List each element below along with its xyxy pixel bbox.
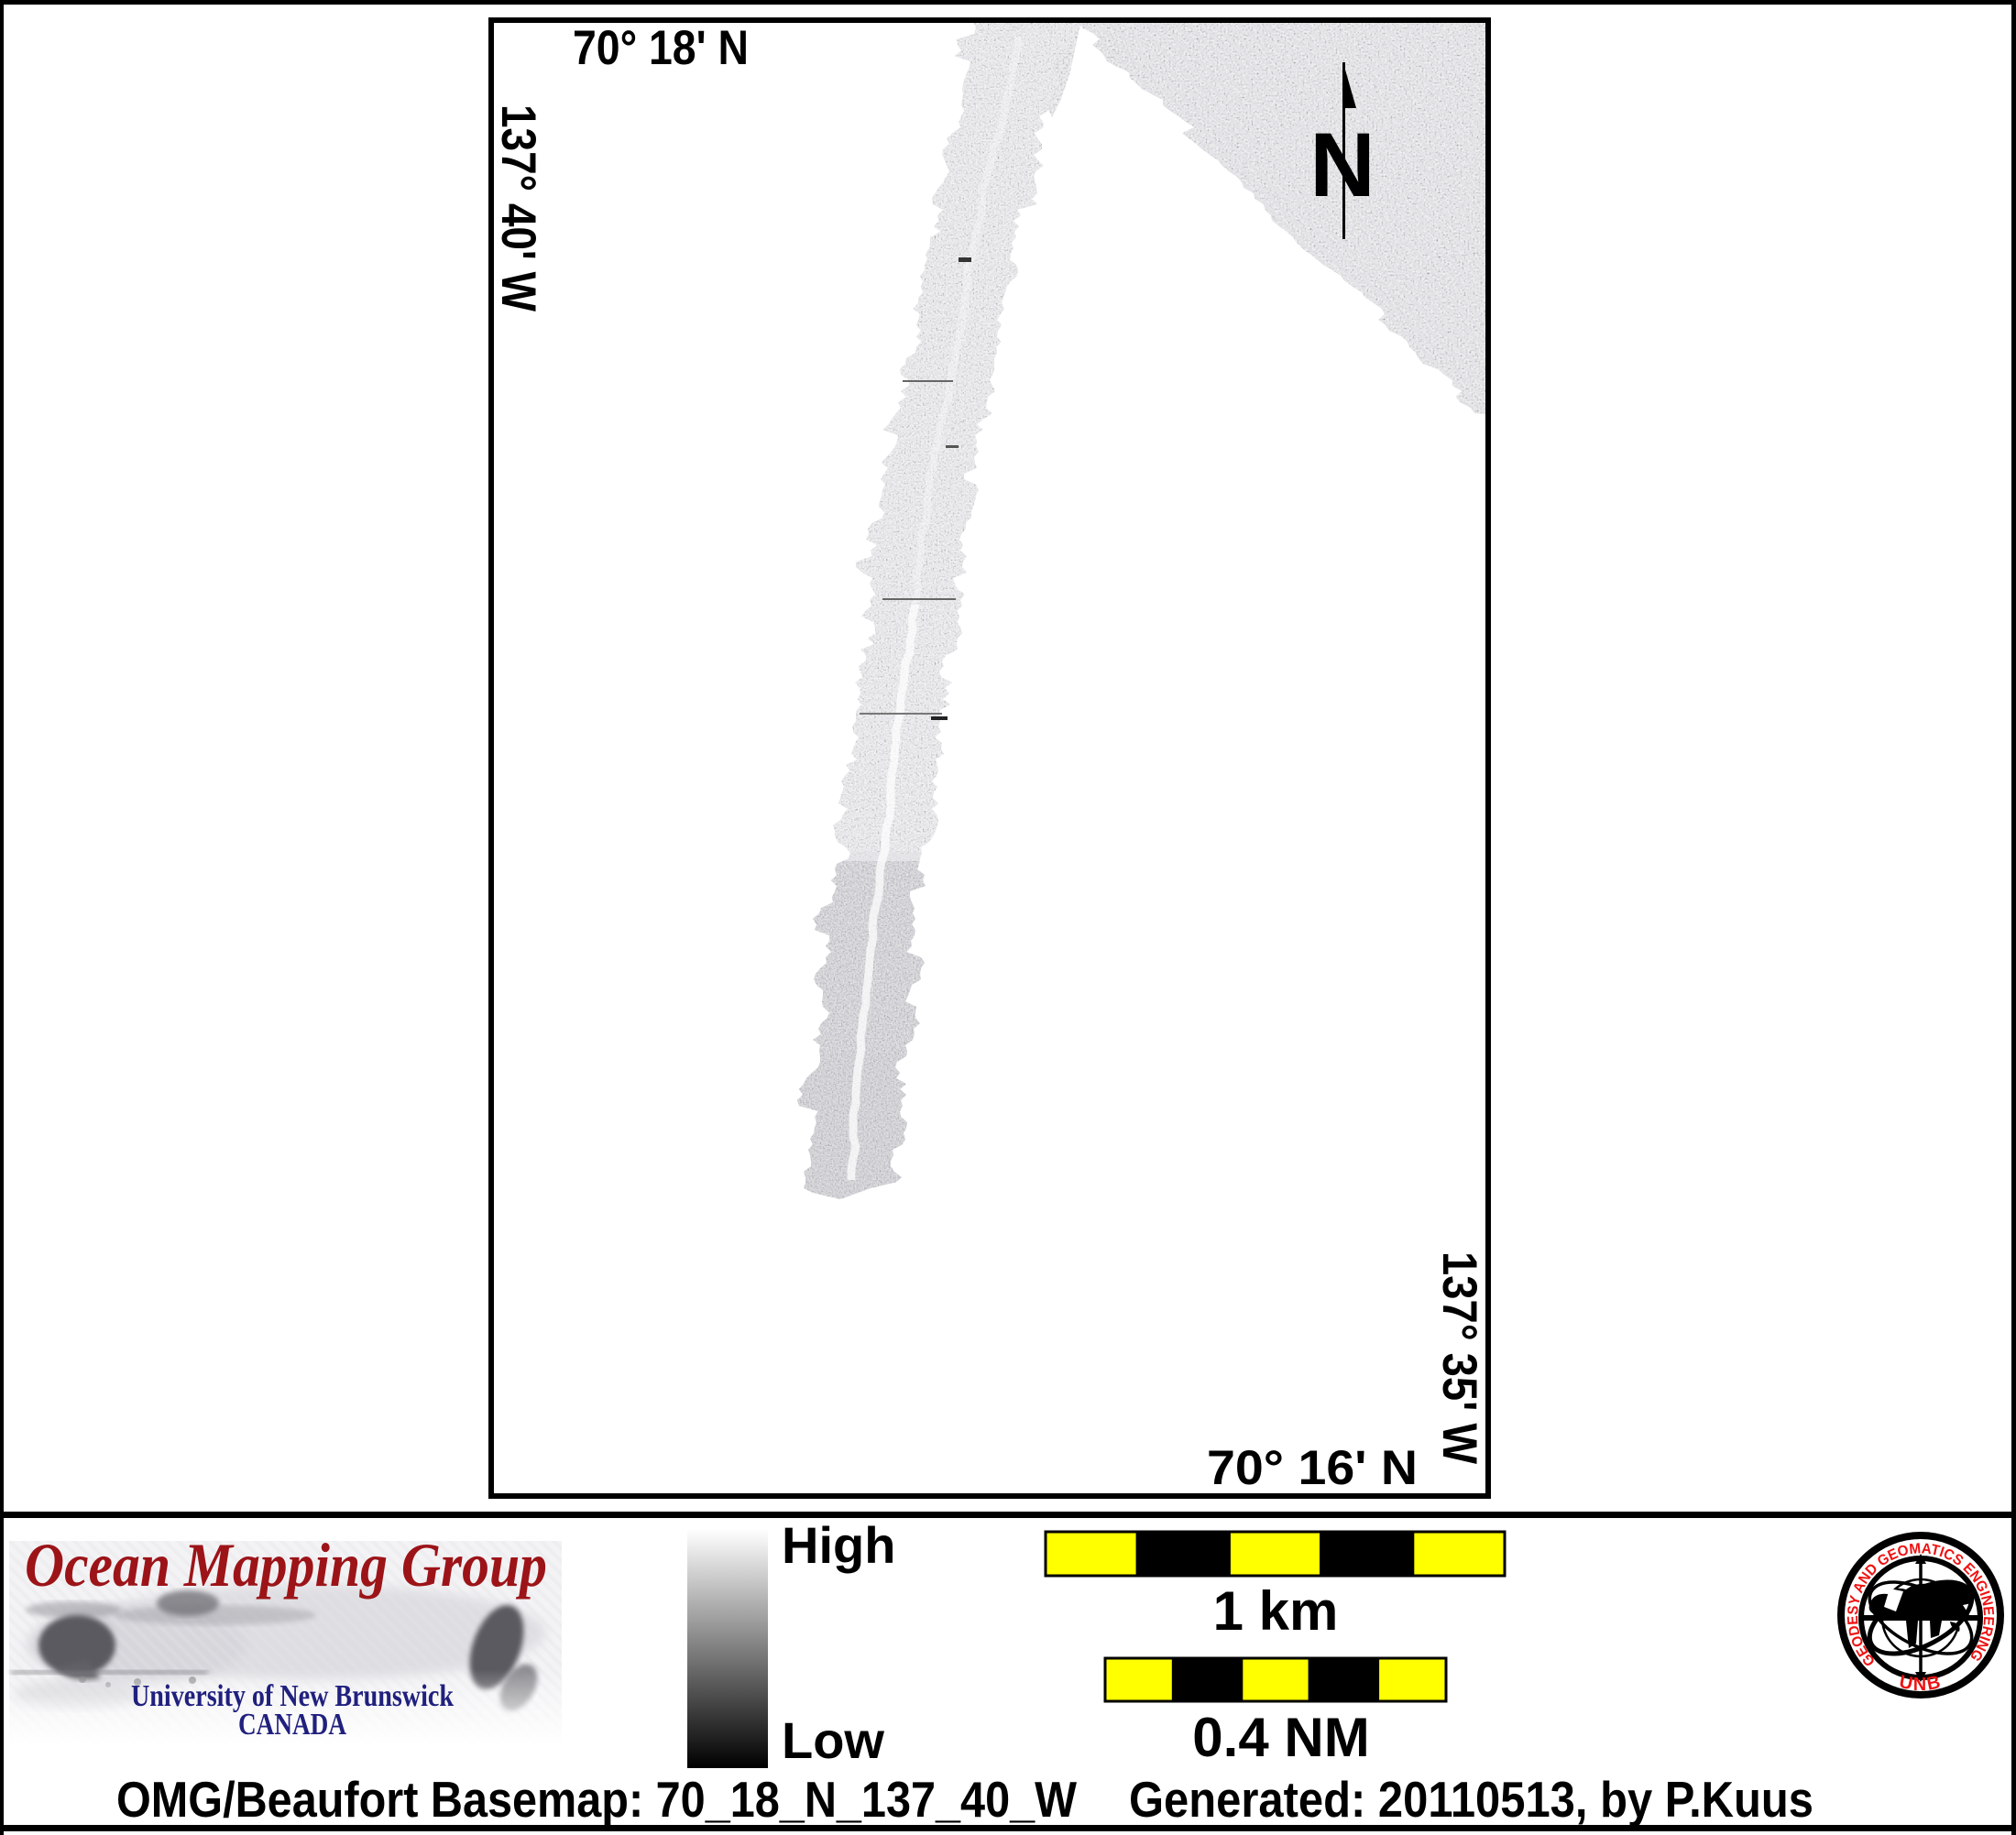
svg-text:CANADA: CANADA	[238, 1708, 346, 1742]
svg-text:OMG/Beaufort Basemap: 70_18_N_: OMG/Beaufort Basemap: 70_18_N_137_40_W	[116, 1771, 1077, 1828]
svg-text:70° 16' N: 70° 16' N	[1207, 1441, 1418, 1495]
svg-text:N: N	[1309, 114, 1375, 215]
svg-text:137° 35' W: 137° 35' W	[1432, 1251, 1486, 1464]
svg-text:Generated: 20110513, by P.Kuus: Generated: 20110513, by P.Kuus	[1129, 1771, 1813, 1828]
svg-text:Ocean Mapping Group: Ocean Mapping Group	[25, 1530, 547, 1600]
svg-text:Low: Low	[782, 1711, 884, 1769]
svg-text:0.4 NM: 0.4 NM	[1192, 1707, 1369, 1768]
svg-text:1 km: 1 km	[1213, 1580, 1339, 1642]
svg-text:UNB: UNB	[1898, 1672, 1945, 1695]
svg-text:70° 18' N: 70° 18' N	[573, 21, 749, 75]
svg-text:High: High	[782, 1516, 895, 1574]
svg-text:137° 40' W: 137° 40' W	[491, 104, 545, 311]
